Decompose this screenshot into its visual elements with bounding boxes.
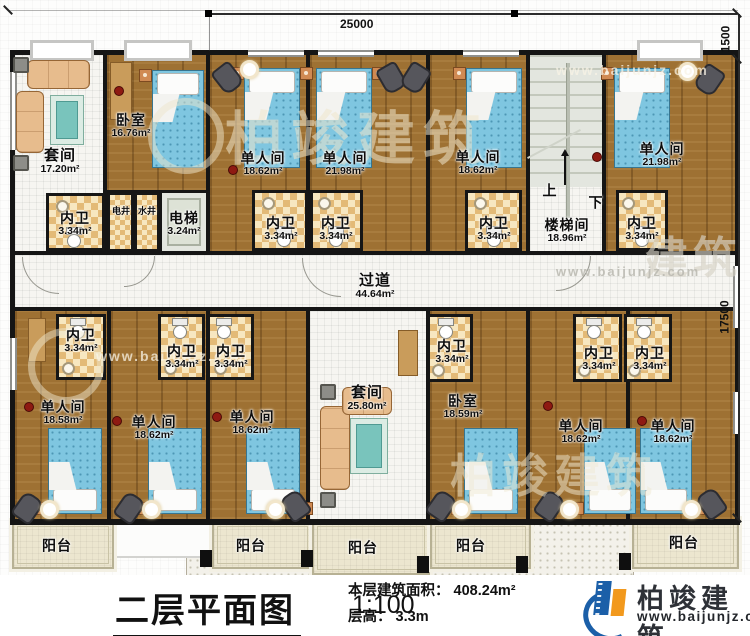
dim-marker (205, 10, 212, 17)
bed-icon (152, 70, 204, 168)
label-single-b4: 单人间18.62m² (559, 419, 604, 445)
floor-area-line: 本层建筑面积： 408.24m² (348, 581, 516, 602)
label-shaft-electric: 电井 (112, 207, 130, 217)
sofa-icon (320, 406, 350, 490)
label-bath-tl: 内卫3.34m² (58, 211, 91, 237)
decor-dot (228, 165, 238, 175)
label-bath-b6: 内卫3.34m² (633, 346, 666, 372)
floor-height-line: 层高： 3.3m (348, 605, 429, 626)
label-bath-b2: 内卫3.34m² (165, 344, 198, 370)
window-icon (248, 50, 304, 57)
dim-line-top (209, 13, 737, 15)
sink-icon (62, 362, 75, 375)
label-single-t4: 单人间21.98m² (640, 142, 685, 168)
label-bedroom-tl: 卧室16.76m² (111, 113, 150, 139)
sink-icon (622, 197, 635, 210)
label-bedroom-b: 卧室18.59m² (443, 394, 482, 420)
toilet-icon (216, 318, 232, 339)
stair-direction-arrow (564, 151, 566, 185)
bed-icon (48, 428, 102, 514)
title-block: 二层平面图 1:100 本层建筑面积： 408.24m² 层高： 3.3m 柏竣… (0, 575, 750, 636)
decor-dot (592, 152, 602, 162)
dim-right-top-value: 1500 (718, 26, 732, 53)
sink-icon (474, 197, 487, 210)
decor-dot (112, 416, 122, 426)
label-bath-t4: 内卫3.34m² (625, 216, 658, 242)
cabinet-icon (13, 155, 29, 171)
label-suite-tl: 套间17.20m² (40, 148, 79, 176)
column (619, 553, 631, 570)
coffee-table-icon (50, 95, 84, 145)
column (516, 556, 528, 573)
sofa-icon (16, 91, 44, 153)
label-elevator: 电梯3.24m² (167, 211, 200, 237)
cabinet-icon (320, 492, 336, 508)
lamp-icon (240, 60, 259, 79)
label-balcony-5: 阳台 (669, 535, 699, 550)
room-shaft-electric (108, 193, 133, 251)
label-bath-b4: 内卫3.34m² (435, 339, 468, 365)
dim-right-side-value: 17500 (718, 300, 732, 333)
dim-top-value: 25000 (340, 17, 373, 31)
dim-guide (209, 13, 210, 51)
window-icon (30, 40, 94, 61)
column (200, 550, 212, 567)
label-balcony-3: 阳台 (348, 540, 378, 555)
decor-dot (543, 401, 553, 411)
column (417, 556, 429, 573)
sink-icon (318, 197, 331, 210)
label-bath-t3: 内卫3.34m² (477, 216, 510, 242)
window-icon (637, 40, 703, 61)
decor-dot (114, 86, 124, 96)
label-single-b1: 单人间18.58m² (41, 400, 86, 426)
decor-dot (24, 402, 34, 412)
lamp-icon (266, 500, 285, 519)
window-icon (10, 338, 17, 390)
label-balcony-4: 阳台 (456, 538, 486, 553)
dim-line-right (738, 14, 740, 520)
label-bath-b5: 内卫3.34m² (582, 346, 615, 372)
label-balcony-1: 阳台 (42, 538, 72, 553)
label-suite-b: 套间25.80m² (347, 385, 386, 413)
label-single-t1: 单人间18.62m² (241, 151, 286, 177)
toilet-icon (636, 318, 652, 339)
label-bath-b1: 内卫3.34m² (64, 328, 97, 354)
label-single-b2: 单人间18.62m² (132, 415, 177, 441)
plan-title: 二层平面图 (113, 583, 301, 636)
label-single-b3: 单人间18.62m² (230, 410, 275, 436)
dim-marker (511, 10, 518, 17)
toilet-icon (172, 318, 188, 339)
label-stair-down: 下 (589, 195, 604, 210)
sink-icon (262, 197, 275, 210)
label-single-t3: 单人间18.62m² (456, 150, 501, 176)
bed-icon (464, 428, 518, 514)
brand-logo-icon (585, 577, 633, 631)
toilet-icon (438, 318, 454, 339)
dim-guide (8, 10, 738, 11)
label-stair-up: 上 (543, 183, 558, 198)
label-bath-t1: 内卫3.34m² (264, 216, 297, 242)
coffee-table-icon (350, 418, 388, 474)
label-bath-t2: 内卫3.34m² (319, 216, 352, 242)
decor-dot (637, 416, 647, 426)
lamp-icon (560, 500, 579, 519)
cabinet-icon (13, 57, 29, 73)
window-icon (318, 50, 374, 57)
label-balcony-2: 阳台 (236, 538, 266, 553)
stairs-icon (530, 55, 602, 187)
lamp-icon (678, 62, 697, 81)
desk-icon (28, 318, 46, 362)
floor-plan-page: 25000 1500 17500 (0, 0, 750, 636)
sink-icon (432, 364, 445, 377)
lamp-icon (142, 500, 161, 519)
toilet-icon (586, 318, 602, 339)
label-stairwell: 楼梯间18.96m² (545, 218, 590, 244)
lamp-icon (40, 500, 59, 519)
brand-website: www.baijunjz.com (637, 609, 750, 624)
cabinet-icon (320, 384, 336, 400)
lamp-icon (452, 500, 471, 519)
label-single-t2: 单人间21.98m² (323, 151, 368, 177)
lamp-icon (682, 500, 701, 519)
sofa-icon (27, 60, 90, 89)
decor-dot (212, 412, 222, 422)
window-icon (124, 40, 192, 61)
label-single-b5: 单人间18.62m² (651, 419, 696, 445)
column (301, 550, 313, 567)
label-shaft-water: 水井 (138, 207, 156, 217)
window-icon (463, 50, 519, 57)
room-shaft-water (135, 193, 159, 251)
label-corridor: 过道44.64m² (355, 273, 394, 301)
brand-name: 柏竣建筑 (637, 577, 750, 636)
label-bath-b3: 内卫3.34m² (214, 344, 247, 370)
desk-icon (398, 330, 418, 376)
